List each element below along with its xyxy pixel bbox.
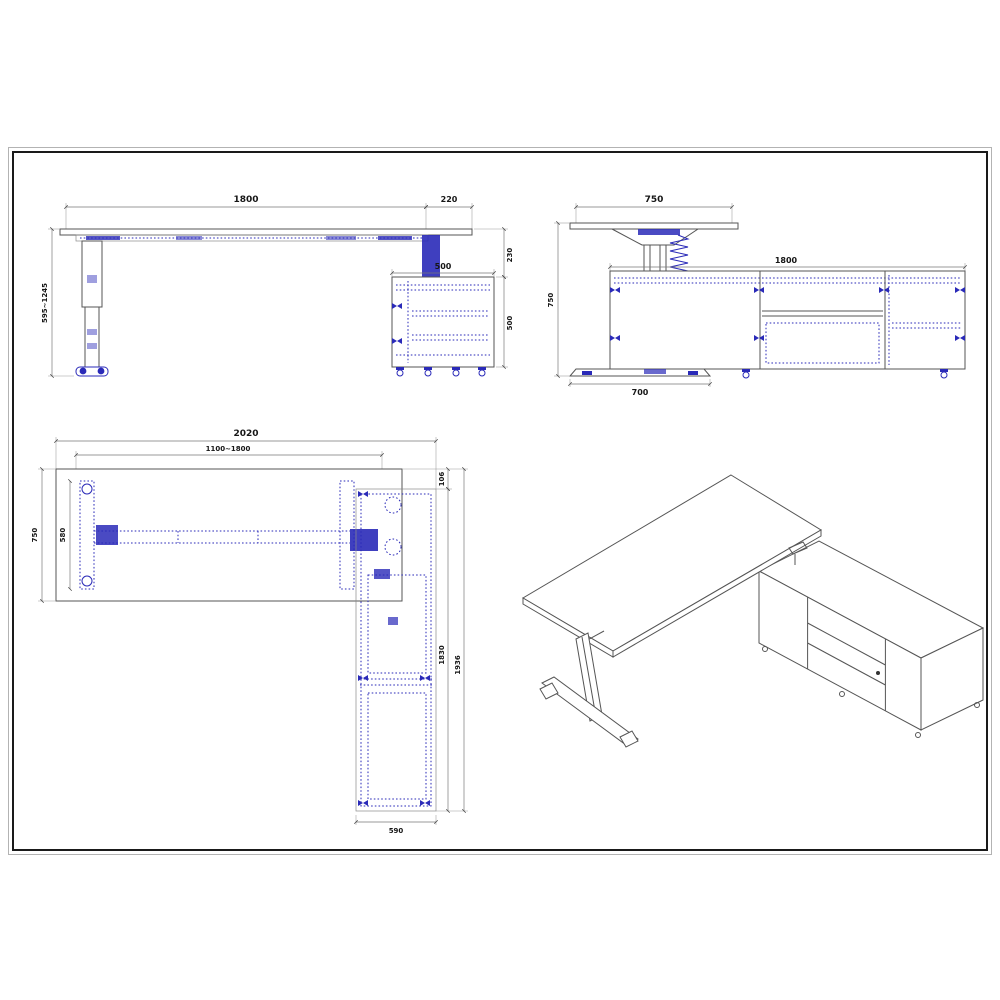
plan-dim-return-width: 590 — [356, 815, 436, 835]
isometric-view — [506, 453, 986, 793]
drawing-sheet-frame: 1800 220 — [8, 147, 992, 855]
side-elevation-view: 750 1800 — [546, 183, 986, 407]
front-dim-desk-width: 1800 — [66, 195, 426, 229]
plan-dim-pedestal-run: 1830 — [436, 489, 468, 811]
dim-label-side-foot-length: 700 — [632, 388, 649, 397]
plan-dim-top-offset: 106 — [402, 469, 468, 489]
iso-caster — [840, 692, 845, 697]
drawing-sheet-inner-frame: 1800 220 — [12, 151, 988, 851]
dim-label-plan-pedestal-run: 1830 — [438, 645, 446, 665]
dim-label-front-overhang: 220 — [441, 195, 458, 204]
dim-label-side-desk-depth: 750 — [645, 195, 664, 205]
iso-credenza — [759, 541, 983, 738]
dim-label-plan-desk-depth: 750 — [31, 528, 39, 543]
dim-label-front-desk-width: 1800 — [233, 195, 258, 205]
dim-label-plan-frame-depth: 580 — [59, 528, 67, 543]
front-desktop — [60, 229, 472, 241]
dim-label-front-height-range: 595~1245 — [41, 283, 49, 323]
dim-label-front-clearance: 230 — [506, 248, 514, 263]
front-left-leg — [76, 241, 108, 376]
front-dim-height-range: 595~1245 — [41, 229, 74, 376]
dim-label-plan-adjustable-width: 1100~1800 — [206, 445, 251, 453]
dim-label-side-overall-height: 750 — [547, 293, 555, 308]
side-desktop — [570, 223, 738, 229]
side-dim-overall-height: 750 — [547, 223, 570, 376]
plan-dim-desk-depth: 750 — [31, 469, 56, 601]
dim-label-plan-return-width: 590 — [389, 827, 404, 835]
side-dim-foot-length: 700 — [570, 379, 710, 397]
dim-label-plan-top-offset: 106 — [438, 472, 446, 487]
side-pedestal-cabinet — [610, 271, 965, 378]
iso-caster — [916, 733, 921, 738]
iso-keyhole — [876, 671, 880, 675]
front-dim-pedestal-height: 500 — [496, 277, 514, 367]
iso-caster — [763, 647, 768, 652]
dim-label-side-pedestal-length: 1800 — [775, 256, 798, 265]
front-dim-overhang: 220 — [426, 195, 472, 229]
front-dim-pedestal-width: 500 — [392, 262, 494, 277]
side-dim-desk-depth: 750 — [576, 195, 732, 223]
dim-label-plan-return-length: 1936 — [454, 655, 462, 675]
plan-dim-adjustable-width: 1100~1800 — [76, 445, 382, 469]
plan-view: 2020 1100~1800 750 — [28, 425, 498, 837]
front-pedestal-cabinet — [392, 277, 494, 376]
side-foot — [570, 369, 710, 376]
dim-label-plan-overall-width: 2020 — [233, 429, 258, 439]
front-elevation-view: 1800 220 — [26, 183, 526, 407]
dim-label-front-pedestal-width: 500 — [435, 262, 452, 271]
dim-label-front-pedestal-height: 500 — [506, 316, 514, 331]
plan-dim-return-length: 1936 — [454, 469, 464, 811]
